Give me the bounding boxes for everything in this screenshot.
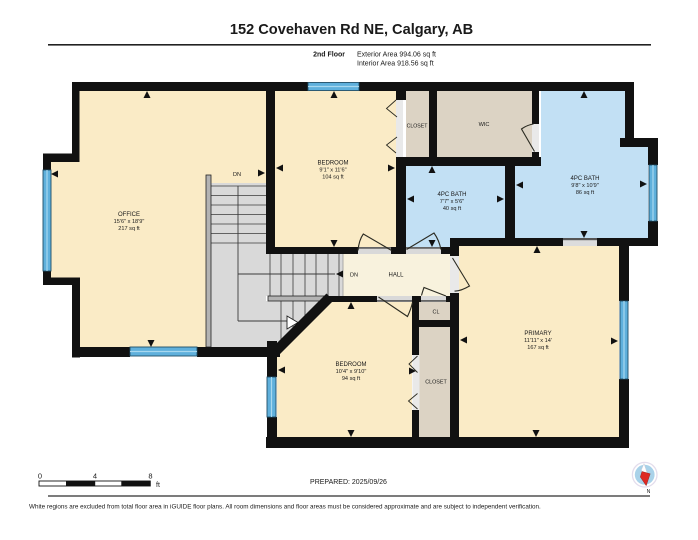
svg-text:BEDROOM: BEDROOM bbox=[335, 362, 366, 368]
svg-text:White regions are excluded fro: White regions are excluded from total fl… bbox=[29, 504, 541, 511]
svg-text:ft: ft bbox=[156, 482, 160, 489]
svg-text:PRIMARY: PRIMARY bbox=[524, 331, 551, 337]
svg-text:217 sq ft: 217 sq ft bbox=[118, 226, 140, 232]
svg-text:HALL: HALL bbox=[388, 273, 404, 279]
svg-text:WIC: WIC bbox=[479, 122, 490, 128]
svg-text:167 sq ft: 167 sq ft bbox=[527, 345, 549, 351]
svg-text:PREPARED: 2025/09/26: PREPARED: 2025/09/26 bbox=[310, 479, 387, 486]
svg-text:CLOSET: CLOSET bbox=[407, 124, 429, 130]
svg-text:9'8" x 10'9": 9'8" x 10'9" bbox=[571, 183, 599, 189]
svg-text:15'6" x 18'9": 15'6" x 18'9" bbox=[114, 219, 145, 225]
svg-text:2nd Floor: 2nd Floor bbox=[313, 52, 345, 59]
svg-text:BEDROOM: BEDROOM bbox=[317, 161, 348, 167]
svg-text:DN: DN bbox=[350, 273, 358, 279]
svg-text:8: 8 bbox=[148, 472, 152, 481]
svg-text:40 sq ft: 40 sq ft bbox=[443, 206, 462, 212]
svg-text:Interior Area 918.56 sq ft: Interior Area 918.56 sq ft bbox=[357, 61, 434, 68]
svg-text:0: 0 bbox=[38, 472, 42, 481]
svg-text:94 sq ft: 94 sq ft bbox=[342, 376, 361, 382]
svg-text:OFFICE: OFFICE bbox=[118, 212, 140, 218]
svg-text:86 sq ft: 86 sq ft bbox=[576, 190, 595, 196]
svg-text:104 sq ft: 104 sq ft bbox=[322, 175, 344, 181]
svg-text:7'7" x 5'6": 7'7" x 5'6" bbox=[440, 199, 464, 205]
svg-text:DN: DN bbox=[233, 172, 241, 178]
svg-text:N: N bbox=[647, 489, 651, 495]
svg-text:4PC BATH: 4PC BATH bbox=[438, 192, 467, 198]
svg-text:Exterior Area 994.06 sq ft: Exterior Area 994.06 sq ft bbox=[357, 52, 436, 59]
svg-text:4PC BATH: 4PC BATH bbox=[571, 176, 600, 182]
svg-text:9'1" x 11'6": 9'1" x 11'6" bbox=[319, 168, 346, 174]
svg-text:CLOSET: CLOSET bbox=[425, 380, 447, 386]
svg-text:CL: CL bbox=[433, 310, 440, 316]
svg-text:4: 4 bbox=[93, 472, 97, 481]
svg-text:152 Covehaven Rd NE, Calgary,: 152 Covehaven Rd NE, Calgary, AB bbox=[230, 22, 473, 38]
svg-text:11'11" x 14': 11'11" x 14' bbox=[524, 338, 552, 344]
svg-text:10'4" x 9'10": 10'4" x 9'10" bbox=[336, 369, 367, 375]
